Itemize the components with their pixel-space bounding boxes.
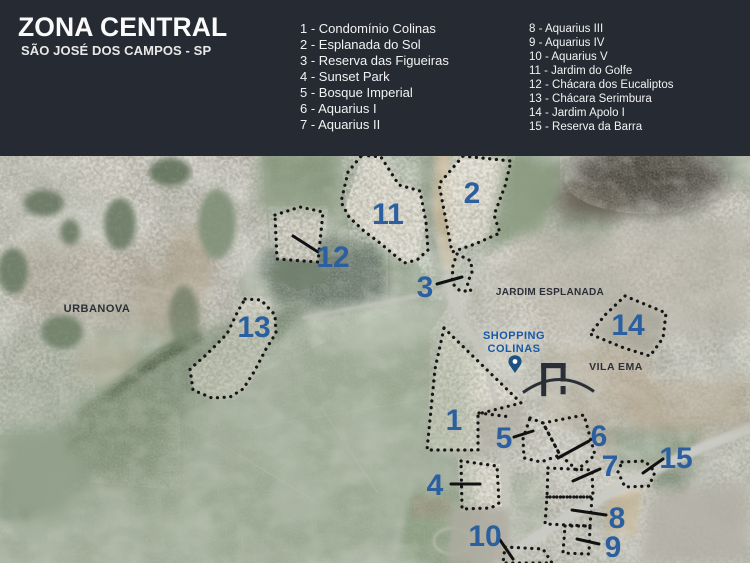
- svg-text:1: 1: [446, 404, 463, 437]
- svg-text:3: 3: [417, 271, 434, 304]
- svg-text:6: 6: [591, 420, 608, 453]
- svg-text:5: 5: [496, 422, 513, 455]
- svg-text:13 - Chácara Serimbura: 13 - Chácara Serimbura: [529, 93, 652, 105]
- svg-text:2: 2: [464, 177, 481, 210]
- svg-text:2 - Esplanada do Sol: 2 - Esplanada do Sol: [300, 37, 421, 52]
- svg-text:9 - Aquarius IV: 9 - Aquarius IV: [529, 37, 605, 49]
- svg-text:JARDIM ESPLANADA: JARDIM ESPLANADA: [496, 287, 604, 298]
- svg-text:VILA EMA: VILA EMA: [589, 361, 643, 373]
- svg-text:12 - Chácara dos Eucaliptos: 12 - Chácara dos Eucaliptos: [529, 79, 674, 91]
- svg-text:7 - Aquarius II: 7 - Aquarius II: [300, 117, 380, 132]
- svg-text:ZONA CENTRAL: ZONA CENTRAL: [18, 12, 227, 42]
- svg-text:15 - Reserva da Barra: 15 - Reserva da Barra: [529, 121, 643, 133]
- svg-text:14: 14: [611, 309, 645, 342]
- svg-text:COLINAS: COLINAS: [488, 343, 541, 355]
- svg-text:12: 12: [316, 241, 349, 274]
- svg-text:5 - Bosque Imperial: 5 - Bosque Imperial: [300, 85, 413, 100]
- svg-text:9: 9: [605, 531, 622, 563]
- svg-text:SHOPPING: SHOPPING: [483, 330, 545, 342]
- svg-text:SÃO JOSÉ DOS CAMPOS - SP: SÃO JOSÉ DOS CAMPOS - SP: [21, 43, 211, 58]
- svg-text:10 - Aquarius V: 10 - Aquarius V: [529, 51, 608, 63]
- svg-text:6 - Aquarius I: 6 - Aquarius I: [300, 101, 377, 116]
- svg-text:15: 15: [659, 442, 692, 475]
- svg-text:11 - Jardim do Golfe: 11 - Jardim do Golfe: [529, 65, 632, 77]
- svg-text:7: 7: [602, 450, 619, 483]
- svg-text:4 - Sunset Park: 4 - Sunset Park: [300, 69, 390, 84]
- svg-text:URBANOVA: URBANOVA: [64, 303, 131, 315]
- svg-text:1 - Condomínio Colinas: 1 - Condomínio Colinas: [300, 21, 436, 36]
- svg-text:13: 13: [237, 311, 270, 344]
- svg-text:3 - Reserva das Figueiras: 3 - Reserva das Figueiras: [300, 53, 449, 68]
- svg-text:10: 10: [468, 520, 501, 553]
- svg-text:8 - Aquarius III: 8 - Aquarius III: [529, 23, 603, 35]
- svg-text:4: 4: [427, 469, 444, 502]
- svg-text:11: 11: [372, 198, 404, 231]
- svg-text:14 - Jardim Apolo I: 14 - Jardim Apolo I: [529, 107, 625, 119]
